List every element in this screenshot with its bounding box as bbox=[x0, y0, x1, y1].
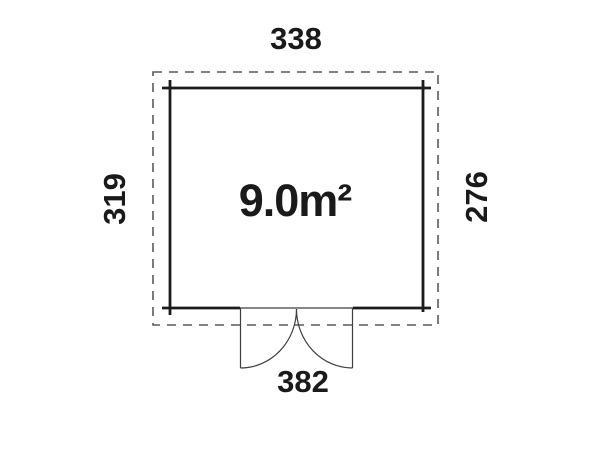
floor-plan-page: 338 319 276 382 9.0m² bbox=[0, 0, 600, 450]
dimension-label-left: 319 bbox=[97, 173, 132, 225]
door-swing-arc-right bbox=[297, 309, 353, 368]
dimension-label-right-group: 276 bbox=[459, 171, 494, 223]
area-label: 9.0m² bbox=[239, 175, 353, 226]
dimension-label-left-group: 319 bbox=[97, 173, 132, 225]
dimension-label-top: 338 bbox=[270, 21, 322, 56]
dimension-label-right: 276 bbox=[459, 171, 494, 223]
double-door bbox=[240, 308, 353, 368]
floor-plan: 338 319 276 382 9.0m² bbox=[0, 0, 600, 450]
dimension-label-bottom: 382 bbox=[277, 364, 329, 399]
labels: 338 319 276 382 9.0m² bbox=[97, 21, 494, 399]
door-swing-arc-left bbox=[241, 309, 297, 368]
